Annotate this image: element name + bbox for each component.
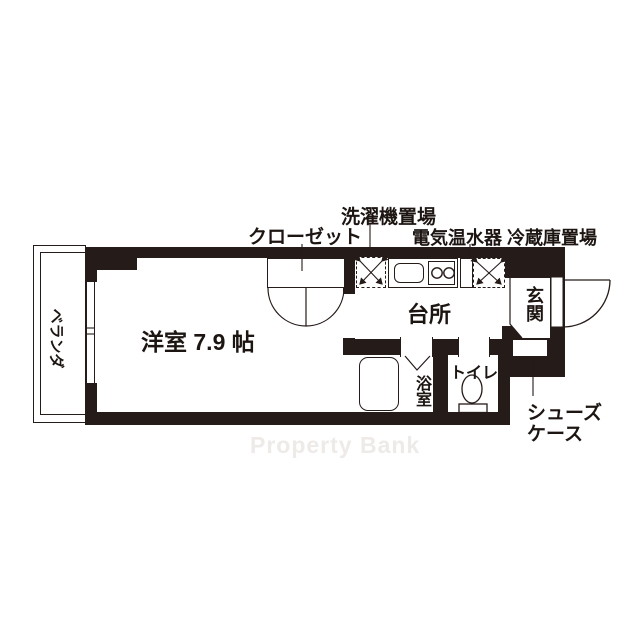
window-ticks [86, 328, 95, 334]
label-shoe-case-line2: ケース [527, 419, 583, 446]
label-heater-fridge-space: 電気温水器 冷蔵庫置場 [412, 224, 597, 250]
fridge-x-mark [477, 262, 501, 284]
floor-plan: クローゼット 洗濯機置場 電気温水器 冷蔵庫置場 洋室 7.9 帖 台所 玄関 … [0, 0, 640, 640]
shoe-case-box [512, 339, 548, 357]
bathtub [359, 357, 399, 411]
closet-door-arcs [268, 288, 344, 326]
stove-burner-right [444, 268, 454, 278]
watermark: Property Bank [250, 432, 420, 459]
label-veranda: ベランダ [47, 294, 68, 384]
label-entrance: 玄関 [521, 286, 547, 322]
label-toilet: トイレ [450, 359, 498, 383]
stove-burner-left [432, 268, 442, 278]
label-bathroom: 浴室 [409, 375, 433, 407]
label-main-room: 洋室 7.9 帖 [141, 323, 255, 357]
entrance-door-opening [551, 277, 563, 327]
bath-door-v [405, 356, 430, 370]
entrance-door-arc [563, 280, 610, 327]
label-kitchen: 台所 [407, 297, 451, 329]
washer-x-mark [360, 261, 382, 284]
